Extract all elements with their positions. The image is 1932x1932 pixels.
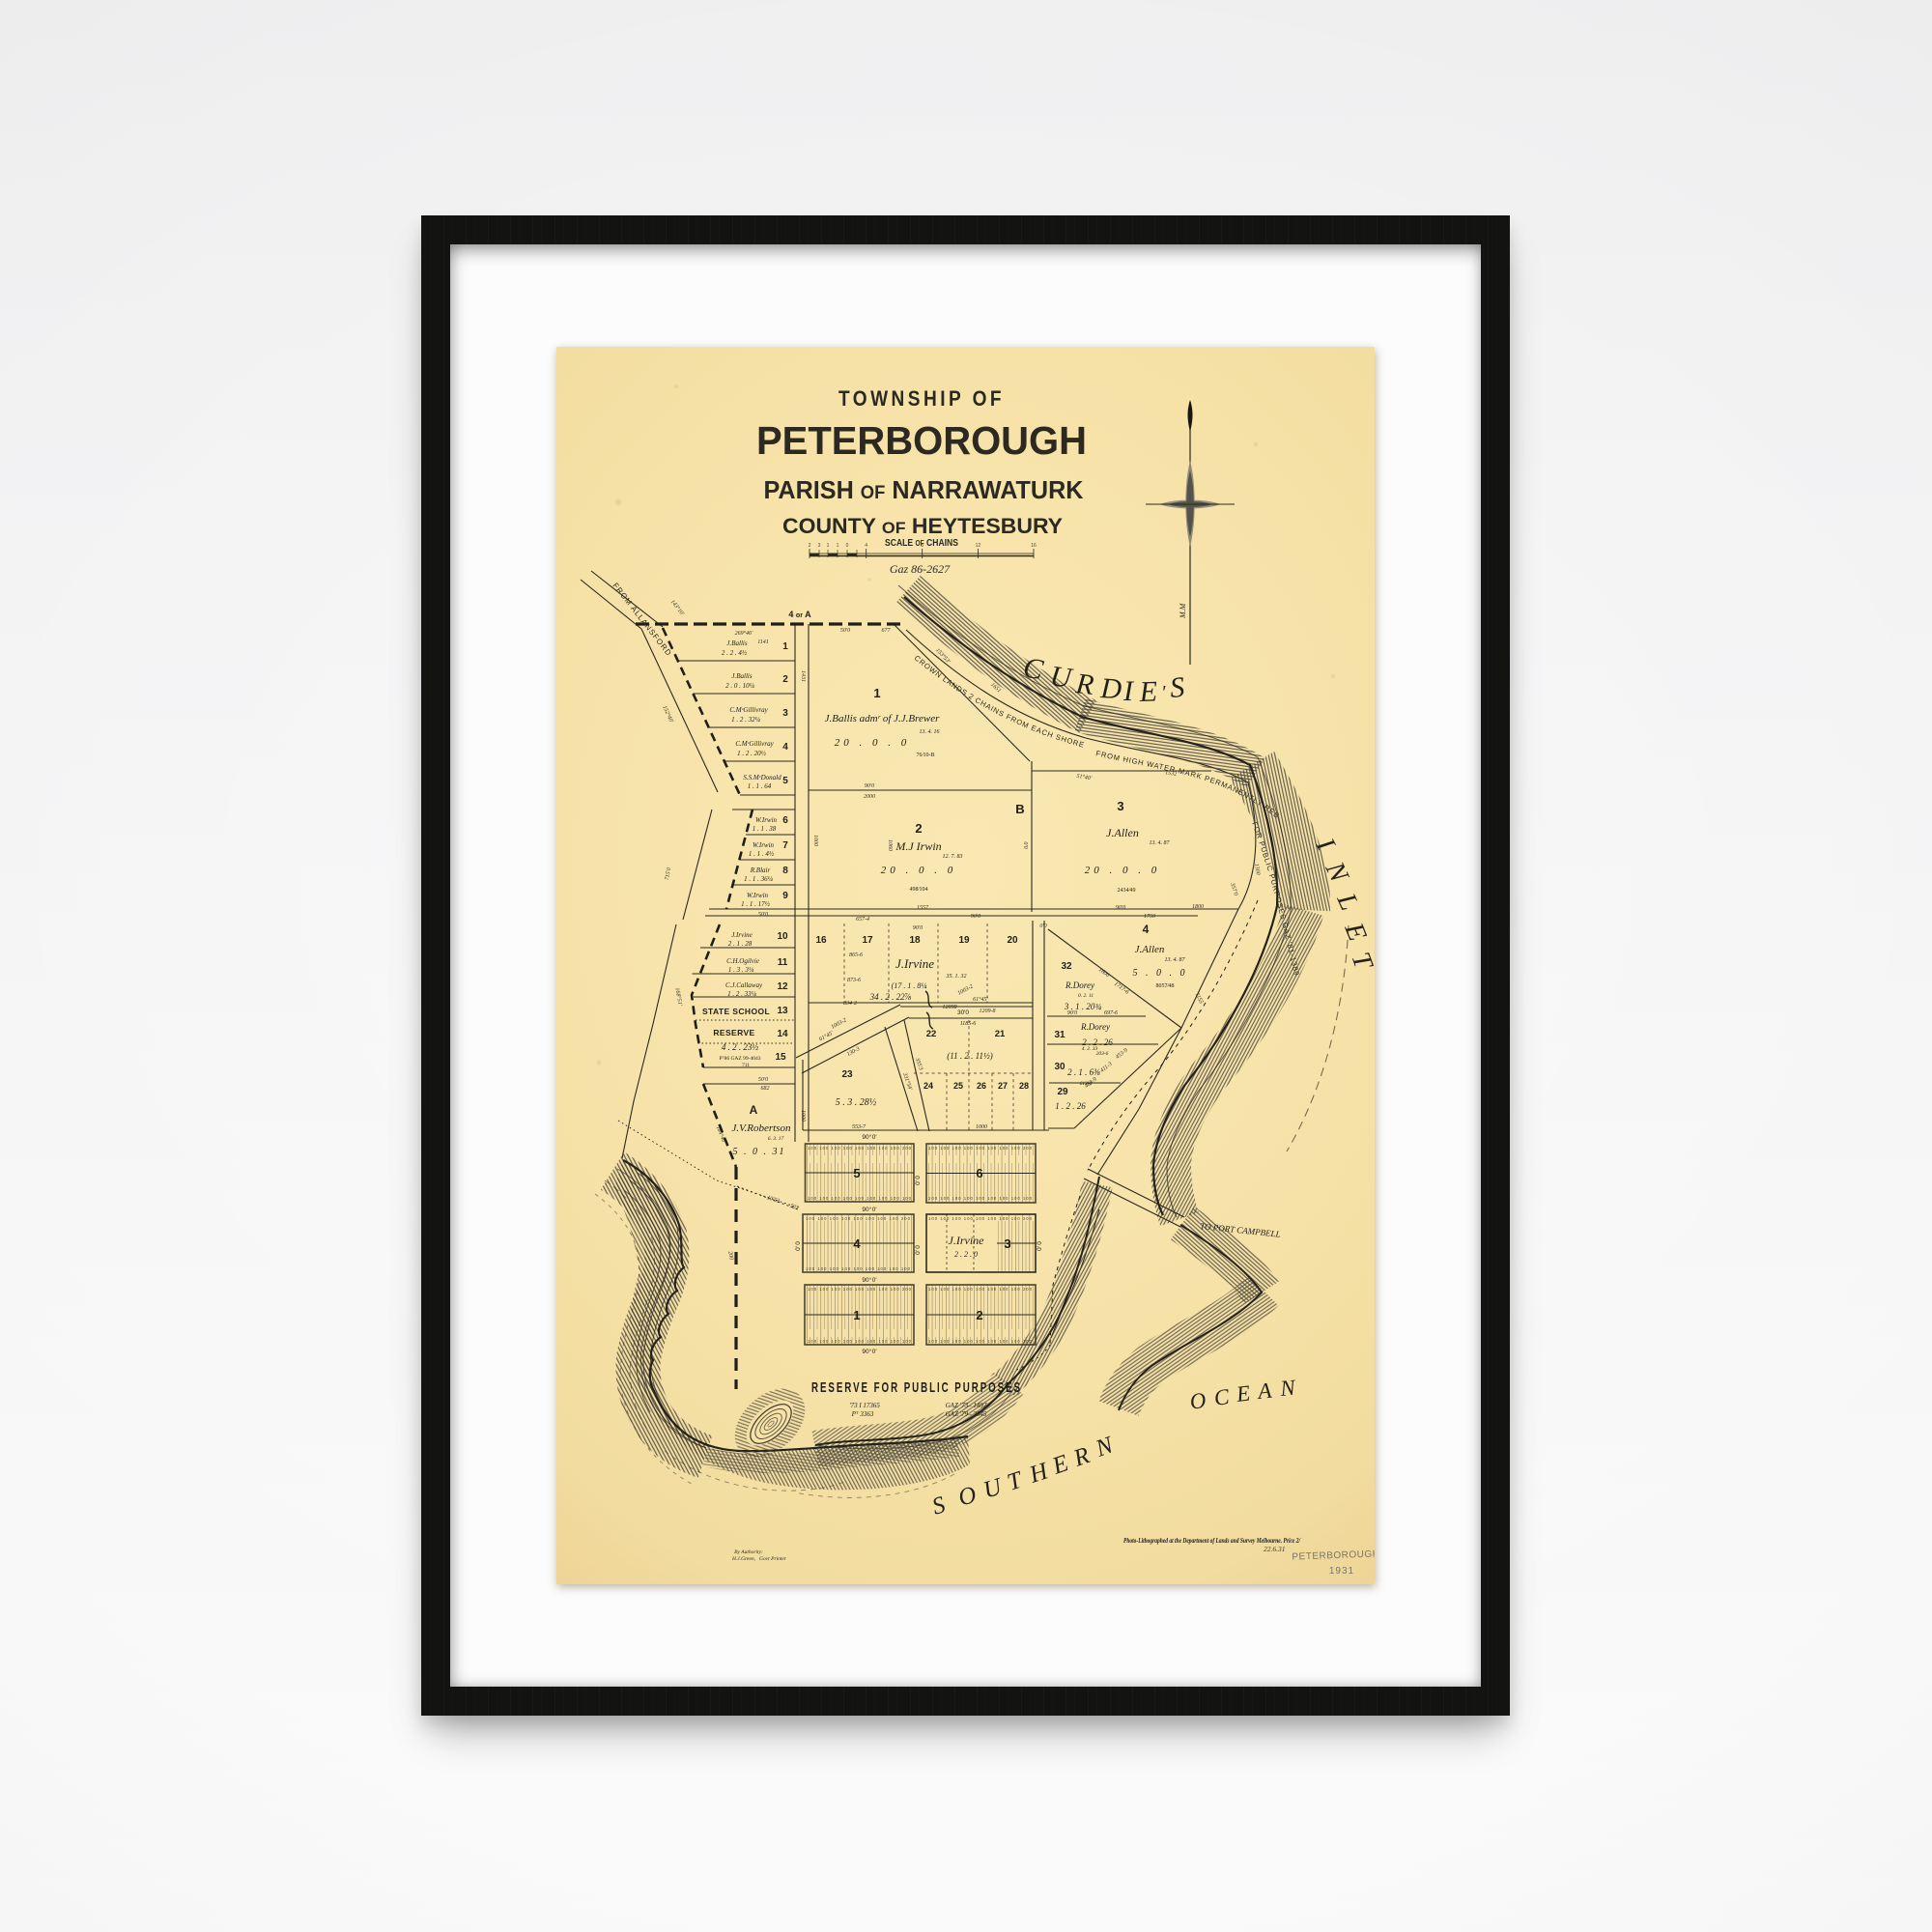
svg-text:2434⁄49: 2434⁄49 [1117,888,1135,894]
svg-text:S: S [929,1492,949,1520]
svg-text:411-3: 411-3 [1099,1061,1114,1074]
svg-text:4: 4 [853,1236,861,1251]
svg-text:657-4: 657-4 [856,916,869,923]
svg-text:D: D [1099,672,1123,705]
svg-text:1: 1 [873,686,880,700]
svg-text:3: 3 [818,543,821,549]
svg-text:1 . 3 . 3¼: 1 . 3 . 3¼ [728,966,754,974]
svg-text:90'0: 90'0 [865,783,874,789]
svg-text:100 100 100 100 100 100 100 10: 100 100 100 100 100 100 100 100 100 [928,1339,1033,1344]
svg-text:A: A [750,1103,758,1117]
svg-text:90° 0': 90° 0' [862,1206,876,1213]
svg-text:(17 . 1 . 8¼: (17 . 1 . 8¼ [892,981,927,990]
svg-text:143°10': 143°10' [669,599,686,618]
svg-text:1931: 1931 [1329,1566,1354,1577]
svg-text:5 . 3 . 28½: 5 . 3 . 28½ [836,1097,877,1108]
svg-text:TOWNSHIP OF: TOWNSHIP OF [838,386,1005,411]
svg-text:873-6: 873-6 [847,978,861,983]
svg-text:27: 27 [998,1081,1008,1091]
svg-text:1209-8: 1209-8 [980,1009,996,1014]
svg-text:1 . 1 . 17½: 1 . 1 . 17½ [741,900,771,908]
svg-text:5: 5 [782,776,788,786]
svg-text:90'0: 90'0 [913,925,923,931]
svg-text:C.J.Callaway: C.J.Callaway [725,981,763,989]
svg-text:J.Ballis admʳ of J.J.Brewer: J.Ballis admʳ of J.J.Brewer [825,713,940,724]
svg-text:28: 28 [1019,1081,1029,1091]
svg-text:R.Dorey: R.Dorey [1080,1022,1110,1032]
svg-text:C.MᶜGillivray: C.MᶜGillivray [735,740,774,748]
svg-text:90'0: 90'0 [1067,1010,1077,1016]
svg-text:24: 24 [923,1081,933,1091]
svg-text:I: I [1122,675,1135,707]
svg-text:12098: 12098 [943,1005,957,1010]
svg-text:J.Irvine: J.Irvine [731,931,753,939]
svg-text:1000: 1000 [976,1124,987,1130]
svg-text:100 100 100 100 100 100 100 10: 100 100 100 100 100 100 100 100 200 [808,1287,912,1292]
svg-text:30'0: 30'0 [957,1009,969,1016]
svg-text:697-6: 697-6 [1104,1010,1118,1016]
svg-text:5 . 0 . 31: 5 . 0 . 31 [733,1147,786,1157]
svg-text:13. 4. 87: 13. 4. 87 [1165,956,1186,963]
svg-text:1532: 1532 [1165,770,1178,778]
svg-text:': ' [1161,682,1166,703]
svg-text:2: 2 [976,1308,982,1322]
svg-text:FROM ALLANSFORD: FROM ALLANSFORD [611,582,673,658]
svg-text:30: 30 [1054,1062,1065,1072]
svg-text:23: 23 [841,1069,853,1080]
svg-text:50'0: 50'0 [840,628,850,634]
svg-text:E: E [1338,918,1373,945]
svg-text:1003-2: 1003-2 [957,983,975,996]
svg-text:12: 12 [777,981,788,992]
svg-text:20 . 0 . 0: 20 . 0 . 0 [1085,865,1161,876]
svg-text:100 100 100 100 100 100 100 10: 100 100 100 100 100 100 100 100 200 [808,1146,912,1151]
svg-text:4 or A: 4 or A [788,610,811,619]
svg-text:0. 2. 11: 0. 2. 11 [1078,993,1094,999]
svg-text:1000: 1000 [812,835,818,846]
svg-text:1 . 2 . 32¼: 1 . 2 . 32¼ [731,716,761,724]
svg-text:C: C [1212,1384,1231,1410]
svg-text:1800: 1800 [1192,904,1204,910]
svg-text:E: E [1138,675,1157,708]
svg-text:3: 3 [782,708,788,719]
svg-text:2 . 0 . 10¼: 2 . 0 . 10¼ [725,682,755,690]
svg-text:O: O [955,1482,980,1512]
svg-text:100 100 100 100 100 100 100 10: 100 100 100 100 100 100 100 100 100 [808,1339,912,1344]
svg-text:269°46': 269°46' [735,630,753,637]
svg-text:15: 15 [775,1052,786,1063]
svg-text:PARISH OF NARRAWATURK: PARISH OF NARRAWATURK [764,475,1084,504]
svg-text:453-9: 453-9 [1114,1047,1128,1061]
svg-text:1 . 1 . 36¼: 1 . 1 . 36¼ [744,875,774,883]
svg-text:0' 0: 0' 0 [915,1245,922,1255]
svg-text:R.Dorey: R.Dorey [1065,980,1094,990]
svg-text:17: 17 [862,935,873,946]
svg-text:20: 20 [1007,935,1018,946]
svg-text:26: 26 [977,1081,986,1091]
svg-text:90° 0': 90° 0' [862,1348,876,1355]
svg-text:O: O [1188,1388,1208,1414]
svg-text:2: 2 [915,821,922,836]
svg-text:1300: 1300 [1253,863,1261,875]
svg-text:1 . 2 . 26: 1 . 2 . 26 [1055,1101,1086,1111]
svg-text:22.6.31: 22.6.31 [1264,1545,1286,1553]
svg-text:8: 8 [782,866,788,876]
svg-text:14: 14 [777,1029,788,1039]
svg-text:0' 0: 0' 0 [795,1241,802,1251]
svg-text:522: 522 [789,1204,799,1211]
svg-text:6: 6 [782,815,788,826]
svg-text:5: 5 [853,1166,860,1180]
svg-text:21: 21 [995,1029,1006,1039]
svg-text:R.Blair: R.Blair [750,867,771,874]
svg-text:S: S [1169,671,1186,704]
svg-text:711: 711 [742,1063,750,1068]
svg-text:22: 22 [926,1029,937,1039]
svg-text:6. 3. 17: 6. 3. 17 [768,1136,784,1142]
svg-text:100 100 100 100 100 100 100 10: 100 100 100 100 100 100 100 100 100 [928,1196,1033,1201]
svg-text:203-6: 203-6 [1096,1051,1109,1057]
svg-text:0'0: 0'0 [1039,923,1046,929]
svg-text:'73 I 17365: '73 I 17365 [849,1402,880,1409]
svg-text:RESERVE FOR PUBLIC PURPOSES: RESERVE FOR PUBLIC PURPOSES [811,1379,1022,1396]
svg-text:1185-6: 1185-6 [960,1021,977,1027]
svg-text:35. 1. 32: 35. 1. 32 [946,974,967,980]
svg-text:L: L [1330,888,1364,915]
svg-text:2 . 1 . 6⅜: 2 . 1 . 6⅜ [1067,1067,1100,1077]
svg-text:50'0: 50'0 [758,1077,768,1083]
svg-text:12. 7. 83: 12. 7. 83 [943,854,963,860]
svg-text:B: B [1015,802,1024,816]
svg-text:76⁄10-B: 76⁄10-B [916,753,934,758]
svg-text:12: 12 [976,543,981,549]
svg-text:1000: 1000 [800,1110,806,1122]
svg-text:13. 4. 87: 13. 4. 87 [1150,839,1171,846]
svg-text:N: N [1278,1376,1297,1401]
svg-text:1750: 1750 [1144,914,1155,920]
svg-text:1003-2: 1003-2 [831,1017,848,1030]
svg-text:100 100 100 100 100 100 100 10: 100 100 100 100 100 100 100 100 100 [808,1196,912,1201]
svg-text:T: T [1345,949,1375,976]
svg-text:5 . 0 . 0: 5 . 0 . 0 [1133,968,1188,979]
svg-text:1: 1 [782,641,788,652]
svg-text:20 . 0 . 0: 20 . 0 . 0 [835,737,911,749]
svg-text:6: 6 [976,1166,982,1180]
svg-text:715'0: 715'0 [665,867,673,881]
svg-text:PETERBOROUGH: PETERBOROUGH [756,418,1087,463]
svg-text:J.Ballis: J.Ballis [726,639,747,647]
svg-text:29: 29 [1057,1087,1068,1097]
svg-text:463-9: 463-9 [1083,1076,1097,1090]
svg-text:C.H.Ogilvie: C.H.Ogilvie [726,957,759,965]
svg-text:1: 1 [853,1308,860,1322]
svg-text:13: 13 [777,1006,788,1016]
svg-text:1060: 1060 [887,839,893,851]
svg-text:1 . 2 . 20½: 1 . 2 . 20½ [737,750,767,757]
svg-text:553-7: 553-7 [852,1124,867,1130]
svg-text:COUNTY OF HEYTESBURY: COUNTY OF HEYTESBURY [782,514,1063,538]
svg-text:152°40': 152°40' [661,704,675,724]
svg-text:19: 19 [958,935,970,946]
svg-text:H.J.Green,: H.J.Green, [731,1556,756,1562]
svg-text:61°45': 61°45' [818,1030,836,1043]
svg-text:2: 2 [782,674,788,685]
svg-text:9: 9 [782,891,788,901]
svg-text:18: 18 [909,935,921,946]
svg-text:200: 200 [726,1251,733,1261]
svg-text:Photo-Lithographed at the Depa: Photo-Lithographed at the Department of … [1123,1538,1301,1545]
svg-text:1600: 1600 [1097,967,1110,979]
svg-text:10'53: 10'53 [766,1195,781,1205]
svg-text:4 . 2 . 23½: 4 . 2 . 23½ [722,1042,759,1052]
svg-text:31: 31 [1054,1030,1065,1040]
svg-text:100 100 100 100 100 100 100 10: 100 100 100 100 100 100 100 100 200 [928,1216,1033,1221]
svg-text:STATE SCHOOL: STATE SCHOOL [702,1007,770,1016]
svg-text:20 . 0 . 0: 20 . 0 . 0 [881,865,957,876]
svg-text:50'0: 50'0 [758,912,768,918]
svg-text:GAZ '79– 2045: GAZ '79– 2045 [946,1410,987,1418]
svg-text:25: 25 [953,1081,963,1091]
svg-text:1431: 1431 [800,670,807,682]
svg-text:(11 . 2 . 11½): (11 . 2 . 11½) [947,1051,992,1061]
svg-text:E: E [1235,1380,1252,1406]
svg-text:865-6: 865-6 [849,952,863,958]
svg-text:2 . 2 . 4½: 2 . 2 . 4½ [722,649,748,657]
svg-text:Pᵀ86 GAZ 99-4043: Pᵀ86 GAZ 99-4043 [720,1056,761,1062]
svg-text:J.Irvine: J.Irvine [949,1234,985,1247]
svg-text:C.MᶜGillivray: C.MᶜGillivray [729,706,768,714]
svg-text:J.Allen: J.Allen [1135,944,1165,955]
svg-text:W.Irwin: W.Irwin [755,816,778,824]
svg-text:331°54': 331°54' [901,1071,914,1093]
svg-text:By Authority:: By Authority: [734,1549,763,1555]
svg-text:1 . 1 . 64: 1 . 1 . 64 [748,782,772,790]
svg-text:498⁄104: 498⁄104 [909,887,927,893]
svg-text:RESERVE: RESERVE [713,1028,754,1037]
svg-text:7: 7 [782,840,788,851]
svg-text:1 . 1 . 4½: 1 . 1 . 4½ [749,850,775,858]
svg-text:1 . 1 . 38: 1 . 1 . 38 [753,825,777,833]
svg-text:34 . 2 . 22⅞: 34 . 2 . 22⅞ [869,992,912,1002]
svg-text:0' 0: 0' 0 [915,1176,922,1185]
svg-text:834-2: 834-2 [843,1000,857,1007]
svg-text:E: E [1048,1450,1071,1480]
svg-text:PETERBOROUGH: PETERBOROUGH [1292,1548,1375,1562]
svg-text:130-3: 130-3 [846,1046,861,1058]
svg-text:3: 3 [1117,799,1123,813]
svg-text:100 100 100 100 100 100 100 10: 100 100 100 100 100 100 100 100 200 [928,1287,1033,1292]
svg-text:2: 2 [809,543,811,549]
svg-text:51°40': 51°40' [1076,773,1093,782]
svg-text:682: 682 [761,1086,770,1092]
svg-text:8057⁄48: 8057⁄48 [1155,983,1174,989]
svg-text:GAZ '73– 1497: GAZ '73– 1497 [946,1402,987,1409]
svg-text:4: 4 [782,742,788,753]
svg-text:R: R [1069,1442,1093,1472]
svg-text:1557: 1557 [917,905,929,911]
svg-text:M.M: M.M [1179,602,1187,619]
svg-text:1: 1 [827,543,830,549]
svg-text:164°46': 164°46' [715,1124,728,1145]
svg-text:1 . 2 . 33¼: 1 . 2 . 33¼ [727,990,757,998]
svg-text:32: 32 [1061,961,1072,972]
svg-text:H: H [1026,1458,1053,1489]
svg-text:8: 8 [921,543,923,549]
svg-text:677: 677 [882,628,892,634]
svg-text:90'0: 90'0 [971,914,980,920]
svg-text:J.V.Robertson: J.V.Robertson [732,1122,791,1134]
svg-text:N: N [1092,1432,1118,1463]
svg-text:2 . 2 . 0: 2 . 2 . 0 [954,1250,978,1259]
svg-text:100 100 100 100 100 100 100 10: 100 100 100 100 100 100 100 100 100 [806,1266,911,1271]
svg-text:0' 0: 0' 0 [1037,1241,1043,1251]
svg-text:100 100 100 100 100 100 100 10: 100 100 100 100 100 100 100 100 200 [928,1146,1033,1151]
svg-text:2 . 2 . 26: 2 . 2 . 26 [1082,1037,1113,1047]
svg-text:100 100 100 100 100 100 100 10: 100 100 100 100 100 100 100 100 200 [806,1216,911,1221]
svg-text:R: R [1073,668,1095,701]
svg-text:90° 0': 90° 0' [862,1276,876,1284]
svg-text:2000: 2000 [864,794,875,800]
svg-text:61°45': 61°45' [973,996,988,1003]
svg-text:0'0: 0'0 [1022,841,1028,848]
svg-text:2 . 1 . 28: 2 . 1 . 28 [728,940,753,948]
svg-text:4: 4 [865,543,867,549]
svg-text:4: 4 [1143,923,1150,936]
svg-text:1141: 1141 [757,639,769,645]
svg-text:M.J Irwin: M.J Irwin [895,839,941,853]
svg-text:13. 4. 16: 13. 4. 16 [920,728,940,735]
svg-text:S.S.MᶜDonald: S.S.MᶜDonald [743,774,781,781]
svg-text:11: 11 [778,957,788,968]
svg-text:T: T [1005,1466,1028,1496]
svg-text:Gaz 86-2627: Gaz 86-2627 [890,562,951,576]
svg-text:16: 16 [1031,543,1037,549]
svg-text:90'0: 90'0 [1116,905,1125,911]
svg-text:10: 10 [777,931,788,942]
svg-text:J.Irvine: J.Irvine [895,956,934,971]
svg-text:W.Irwin: W.Irwin [747,892,769,899]
svg-text:Pᵀ 3363: Pᵀ 3363 [851,1410,874,1418]
svg-text:J.Ballis: J.Ballis [731,672,752,680]
svg-text:168°51': 168°51' [673,987,683,1007]
svg-text:U: U [980,1473,1007,1504]
svg-text:3: 3 [1004,1236,1010,1251]
svg-text:90° 0': 90° 0' [862,1133,876,1141]
svg-text:W.Irwin: W.Irwin [753,841,775,849]
svg-text:1: 1 [837,543,839,549]
svg-text:357'0: 357'0 [1229,881,1238,895]
svg-text:16: 16 [815,935,827,946]
svg-text:J.Allen: J.Allen [1106,826,1139,839]
svg-text:A: A [1255,1378,1274,1405]
svg-text:Govt Printer: Govt Printer [759,1556,787,1562]
svg-text:0: 0 [846,543,849,549]
